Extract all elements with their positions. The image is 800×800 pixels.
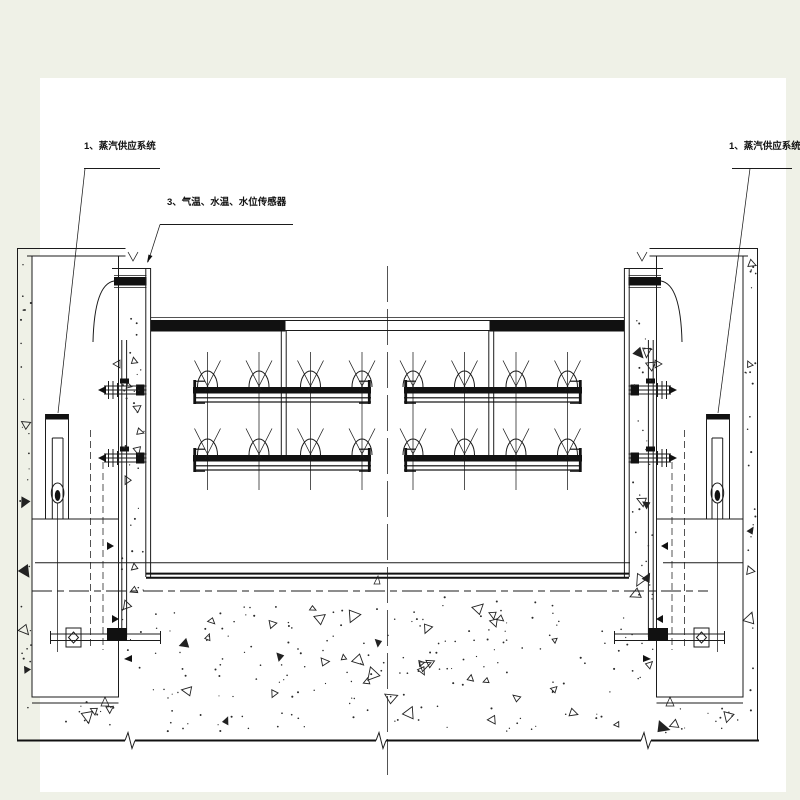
engineering-drawing (0, 0, 800, 800)
callout-steam-system-right: 1、蒸汽供应系统 (729, 141, 800, 153)
right-pier-assembly (388, 248, 759, 740)
foundation-bottom-line (17, 733, 759, 749)
callout-steam-system-left: 1、蒸汽供应系统 (84, 141, 156, 153)
drawing-page: 1、蒸汽供应系统 1、蒸汽供应系统 3、气温、水温、水位传感器 (0, 0, 800, 800)
centerline (374, 266, 388, 782)
callout-sensors: 3、气温、水温、水位传感器 (167, 197, 286, 209)
left-pier-assembly (17, 248, 388, 740)
